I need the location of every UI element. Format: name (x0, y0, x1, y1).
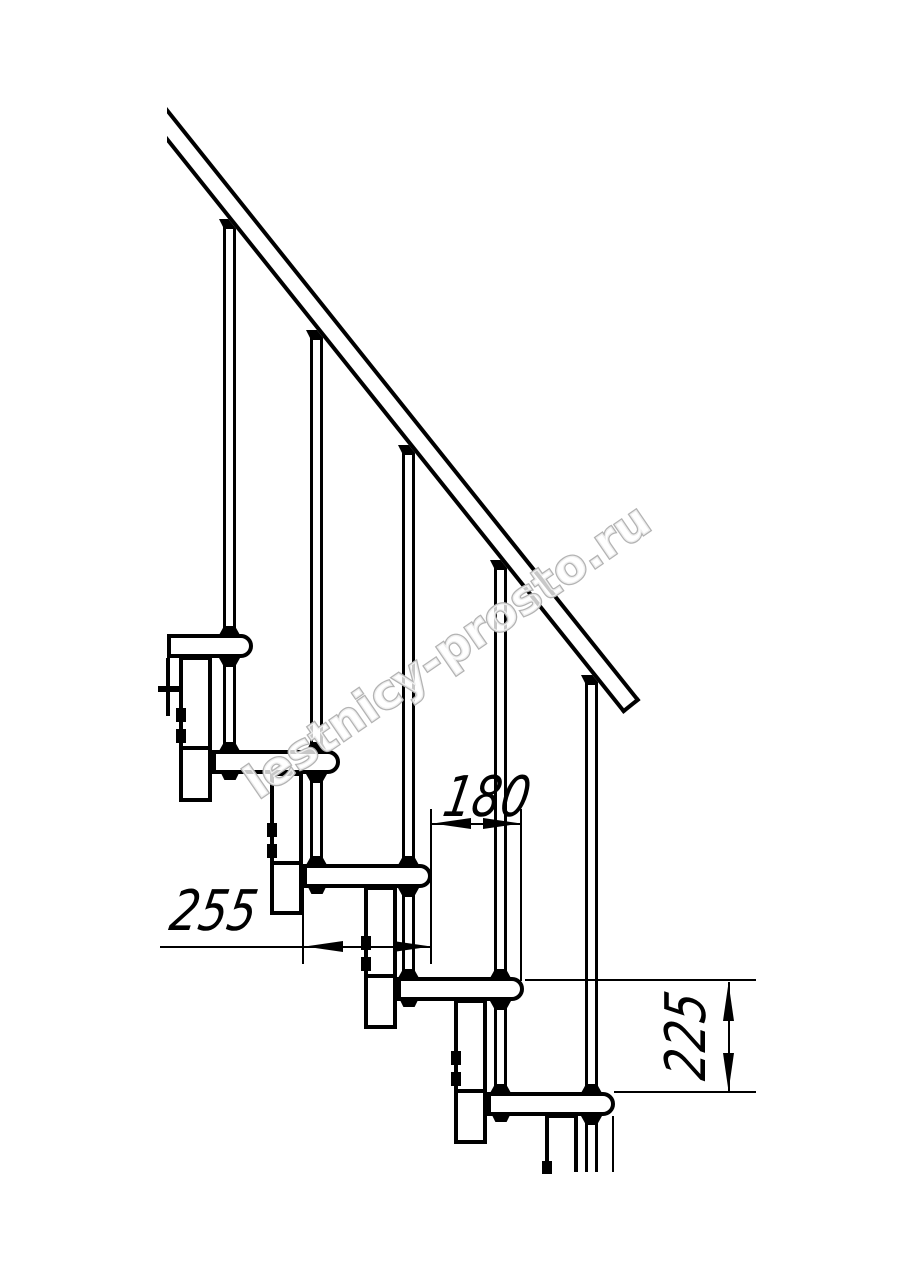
extension-line-180-right (520, 809, 522, 981)
extension-line-225-bottom (614, 1091, 756, 1093)
dim-label-255: 255 (166, 884, 261, 940)
dim-label-180: 180 (439, 770, 522, 826)
extension-line-nose-5 (612, 1116, 614, 1172)
dimension-line-255 (160, 946, 432, 948)
handrail (167, 107, 641, 714)
extension-line-225-top (525, 979, 756, 981)
handrail-clip (167, 0, 914, 1280)
extension-line-255-right (430, 809, 432, 964)
extension-line-255-left (302, 888, 304, 964)
dim-label-225: 225 (659, 988, 715, 1083)
dim-label-225-wrapper: 225 (659, 989, 721, 1089)
technical-drawing: 255 180 225 lestnicy-prosto.ru (0, 0, 914, 1280)
